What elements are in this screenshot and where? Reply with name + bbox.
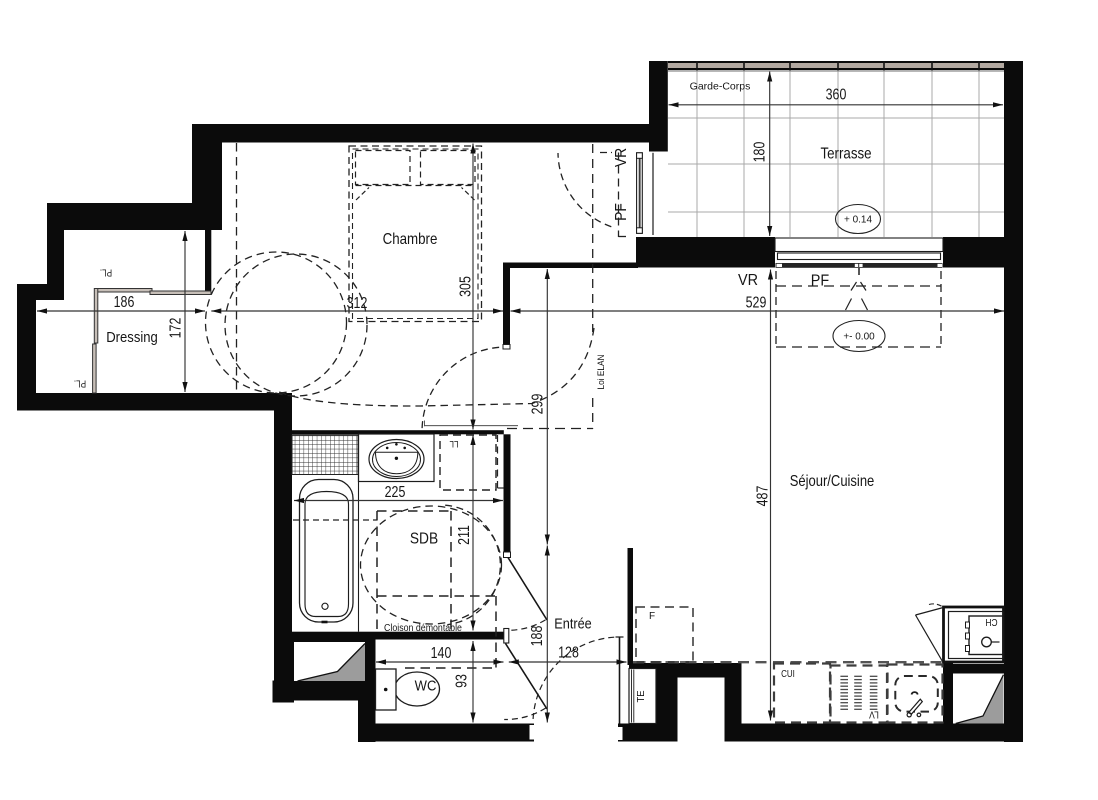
svg-text:186: 186 [114,293,135,311]
svg-text:172: 172 [166,317,184,338]
svg-text:180: 180 [750,141,768,162]
svg-text:SDB: SDB [410,530,438,548]
svg-text:VR: VR [738,272,758,290]
svg-text:PF: PF [613,203,630,221]
svg-text:CUI: CUI [781,668,795,679]
svg-text:PL.: PL. [100,267,112,278]
svg-text:F: F [649,611,655,622]
svg-text:PL.: PL. [74,378,86,389]
svg-text:Garde-Corps: Garde-Corps [690,80,751,92]
svg-text:LL: LL [449,439,458,450]
svg-text:128: 128 [558,643,579,661]
svg-text:93: 93 [452,674,470,688]
svg-text:Chambre: Chambre [383,231,438,248]
svg-text:LV: LV [868,709,879,720]
svg-text:Séjour/Cuisine: Séjour/Cuisine [790,473,875,490]
svg-text:TE: TE [635,690,647,702]
svg-text:225: 225 [385,483,406,501]
svg-text:140: 140 [431,644,452,662]
svg-text:211: 211 [455,525,473,545]
svg-text:Entrée: Entrée [554,616,592,632]
svg-text:299: 299 [528,393,546,414]
svg-text:529: 529 [746,293,767,311]
svg-text:Dressing: Dressing [106,329,158,346]
svg-text:VR: VR [613,148,630,167]
svg-text:305: 305 [456,276,474,297]
svg-text:+- 0.00: +- 0.00 [843,331,875,342]
svg-text:WC: WC [415,677,437,694]
svg-text:312: 312 [347,294,368,312]
svg-text:487: 487 [753,485,771,506]
svg-text:Loi ELAN: Loi ELAN [596,355,606,390]
svg-text:PF: PF [811,272,829,290]
svg-text:188: 188 [528,625,546,646]
svg-text:360: 360 [826,85,847,103]
svg-text:Terrasse: Terrasse [820,146,871,163]
svg-text:+ 0.14: + 0.14 [844,214,872,225]
svg-text:CH: CH [985,617,997,628]
